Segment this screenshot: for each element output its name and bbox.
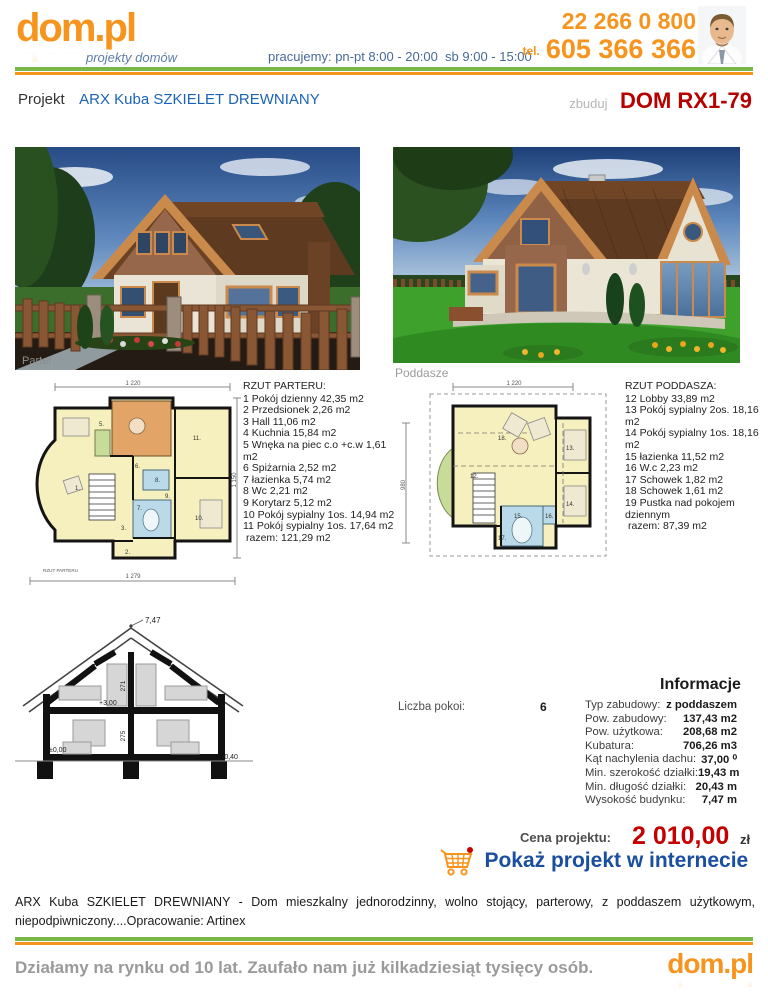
section-level-minus: -0,40 [222, 754, 238, 761]
plan2-room-13: 13. [566, 446, 575, 452]
poddasze-room-list: RZUT PODDASZA: 12 Lobby 33,89 m2 13 Pokó… [625, 381, 765, 533]
list-item: 6 Spiżarnia 2,52 m2 [243, 463, 395, 475]
list-item: 5 Wnęka na piec c.o +c.w 1,61 m2 [243, 440, 395, 463]
header-divider [15, 67, 753, 75]
plan2-room-14: 14. [566, 502, 575, 508]
info-label: Min. długość działki: [585, 781, 686, 795]
poddasze-total: razem: 87,39 m2 [625, 521, 765, 533]
phone-number-2: 605 366 366 [546, 34, 696, 64]
list-item: 14 Pokój sypialny 1os. 18,16 m2 [625, 428, 765, 451]
plan2-dim-top: 1 220 [506, 381, 522, 387]
info-label: Kąt nachylenia dachu: [585, 753, 696, 767]
list-item: 16 W.c 2,23 m2 [625, 463, 765, 475]
plan1-room-6: 6. [135, 464, 140, 470]
info-value: z poddaszem [666, 699, 737, 713]
info-row: Wysokość budynku:7,47 m [585, 794, 737, 808]
info-value: 208,68 m2 [683, 726, 737, 740]
zbuduj-label: zbuduj [569, 96, 607, 111]
house-garden-illustration [393, 147, 740, 363]
plan2-room-18: 18. [498, 436, 507, 442]
plan1-room-8: 8. [155, 478, 160, 484]
show-project-link[interactable]: Pokaż projekt w internecie [440, 846, 748, 876]
footer-logo-reflection: dom.pl [667, 978, 753, 990]
shopping-cart-icon [440, 846, 474, 876]
project-prefix: Projekt [18, 91, 65, 108]
info-row: Kąt nachylenia dachu:37,00 ⁰ [585, 753, 737, 767]
section-level-mid: +3,00 [99, 700, 117, 707]
plan1-room-2: 2. [125, 550, 130, 556]
plan2-room-16: 16. [545, 514, 554, 520]
info-value: 706,26 m3 [683, 740, 737, 754]
info-table: Typ zabudowy:z poddaszem Pow. zabudowy:1… [585, 699, 737, 808]
render-front-caption: Parter [22, 355, 52, 367]
phone-number-1: 22 266 0 800 [523, 8, 697, 34]
info-row: Min. długość działki:20,43 m [585, 781, 737, 795]
list-item: 13 Pokój sypialny 2os. 18,16 m2 [625, 405, 765, 428]
title-bar: Projekt ARX Kuba SZKIELET DREWNIANY zbud… [18, 91, 752, 113]
divider-orange-bar [15, 942, 753, 945]
plan1-caption: RZUT PARTERU [43, 568, 78, 573]
plan1-dim-bottom: 1 279 [125, 574, 141, 580]
parter-total: razem: 121,29 m2 [243, 533, 395, 545]
footer-logo: dom.pl dom.pl [667, 950, 753, 990]
rooms-count-value: 6 [540, 700, 547, 714]
plan1-room-10: 10. [195, 516, 204, 522]
plan1-room-9: 9. [165, 494, 170, 500]
divider-green-bar [15, 937, 753, 941]
house-render-garden [393, 147, 740, 363]
section-peak-height: 7,47 [145, 616, 161, 625]
plan2-room-17: 17. [498, 536, 507, 542]
plan1-room-3: 3. [121, 526, 126, 532]
divider-orange-bar [15, 72, 753, 75]
list-item: 11 Pokój sypialny 1os. 17,64 m2 [243, 521, 395, 533]
info-label: Min. szerokość działki: [585, 767, 698, 781]
info-row: Pow. zabudowy:137,43 m2 [585, 713, 737, 727]
phone-numbers: 22 266 0 800 tel.605 366 366 [523, 8, 697, 66]
rooms-count-label: Liczba pokoi: [398, 701, 465, 713]
plan2-room-12: 12. [470, 474, 479, 480]
info-label: Pow. zabudowy: [585, 713, 667, 727]
working-hours: pracujemy: pn-pt 8:00 - 20:00 sb 9:00 - … [268, 49, 532, 64]
logo-tagline: projekty domów [86, 50, 177, 65]
plan2-dim-left: 980 [401, 479, 407, 490]
info-label: Pow. użytkowa: [585, 726, 663, 740]
info-value: 137,43 m2 [683, 713, 737, 727]
info-row: Pow. użytkowa:208,68 m2 [585, 726, 737, 740]
section-dim-lower: 275 [120, 730, 127, 741]
plan1-room-1: 1. [75, 486, 80, 492]
plan1-dim-right: 1 150 [232, 472, 238, 488]
footer-divider [15, 937, 753, 945]
info-value: 7,47 m [702, 794, 737, 808]
parter-list-heading: RZUT PARTERU: [243, 381, 395, 393]
info-label: Wysokość budynku: [585, 794, 685, 808]
info-heading: Informacje [660, 676, 738, 694]
plan1-room-7: 7. [137, 506, 142, 512]
consultant-photo [698, 6, 746, 64]
footer-tagline: Działamy na rynku od 10 lat. Zaufało nam… [15, 958, 593, 978]
project-code: DOM RX1-79 [620, 88, 752, 113]
list-item: 9 Korytarz 5,12 m2 [243, 498, 395, 510]
tel-label: tel. [523, 44, 540, 58]
info-value: 20,43 m [696, 781, 737, 795]
info-value: 19,43 m [698, 767, 739, 781]
price-currency: zł [740, 832, 750, 847]
footer-logo-text: dom.pl [667, 948, 753, 979]
parter-room-list: RZUT PARTERU: 1 Pokój dzienny 42,35 m2 2… [243, 381, 395, 544]
info-value: 37,00 ⁰ [701, 753, 737, 767]
list-item: 19 Pustka nad pokojem dziennym [625, 498, 765, 521]
plan1-dim-top: 1 220 [125, 381, 141, 387]
poddasze-list-heading: RZUT PODDASZA: [625, 381, 765, 393]
info-label: Typ zabudowy: [585, 699, 660, 713]
project-name-link[interactable]: ARX Kuba SZKIELET DREWNIANY [79, 91, 320, 108]
dompl-logo-text: dom.pl [16, 6, 135, 50]
page: dom.pl dom.pl projekty domów pracujemy: … [0, 0, 768, 994]
project-description: ARX Kuba SZKIELET DREWNIANY - Dom mieszk… [15, 893, 755, 931]
floor-plan-parter: 1 220 1 150 1 279 [15, 378, 243, 590]
price-label: Cena projektu: [520, 830, 611, 845]
divider-green-bar [15, 67, 753, 71]
info-row: Kubatura:706,26 m3 [585, 740, 737, 754]
house-front-illustration [15, 147, 360, 370]
section-level-zero: ±0,00 [49, 747, 67, 754]
info-row: Typ zabudowy:z poddaszem [585, 699, 737, 713]
phone-line-2: tel.605 366 366 [523, 34, 697, 66]
info-label: Kubatura: [585, 740, 634, 754]
floor-plan-poddasze: 1 220 980 [398, 378, 623, 568]
show-project-label: Pokaż projekt w internecie [484, 849, 748, 873]
info-row: Min. szerokość działki:19,43 m [585, 767, 737, 781]
house-render-front: Parter [15, 147, 360, 370]
cross-section-drawing: 7,47 +3,00 ±0,00 -0,40 271 275 [15, 608, 253, 798]
plan1-room-5: 5. [99, 422, 104, 428]
section-dim-upper: 271 [120, 680, 127, 691]
plan2-room-15: 15. [514, 514, 523, 520]
plan1-room-11: 11. [193, 436, 201, 442]
